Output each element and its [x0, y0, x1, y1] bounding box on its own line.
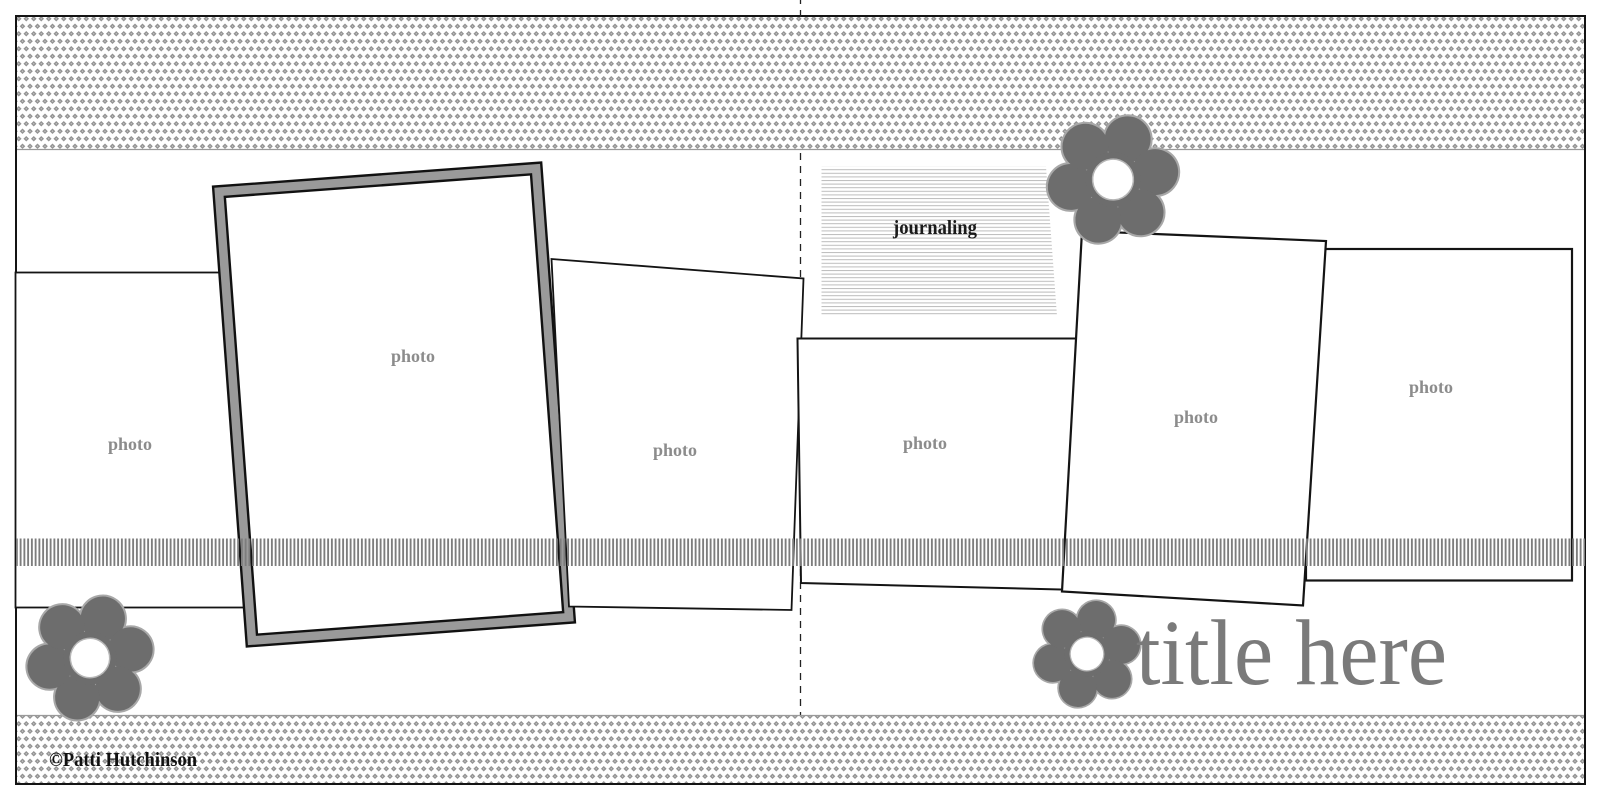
svg-text:photo: photo — [1174, 407, 1218, 427]
svg-text:photo: photo — [653, 440, 697, 460]
svg-text:©Patti Hutchinson: ©Patti Hutchinson — [49, 749, 197, 771]
svg-text:photo: photo — [903, 433, 947, 453]
svg-text:photo: photo — [108, 434, 152, 454]
svg-text:journaling: journaling — [892, 217, 977, 239]
svg-text:photo: photo — [391, 346, 435, 366]
svg-text:title here: title here — [1136, 602, 1447, 705]
svg-text:photo: photo — [1409, 377, 1453, 397]
